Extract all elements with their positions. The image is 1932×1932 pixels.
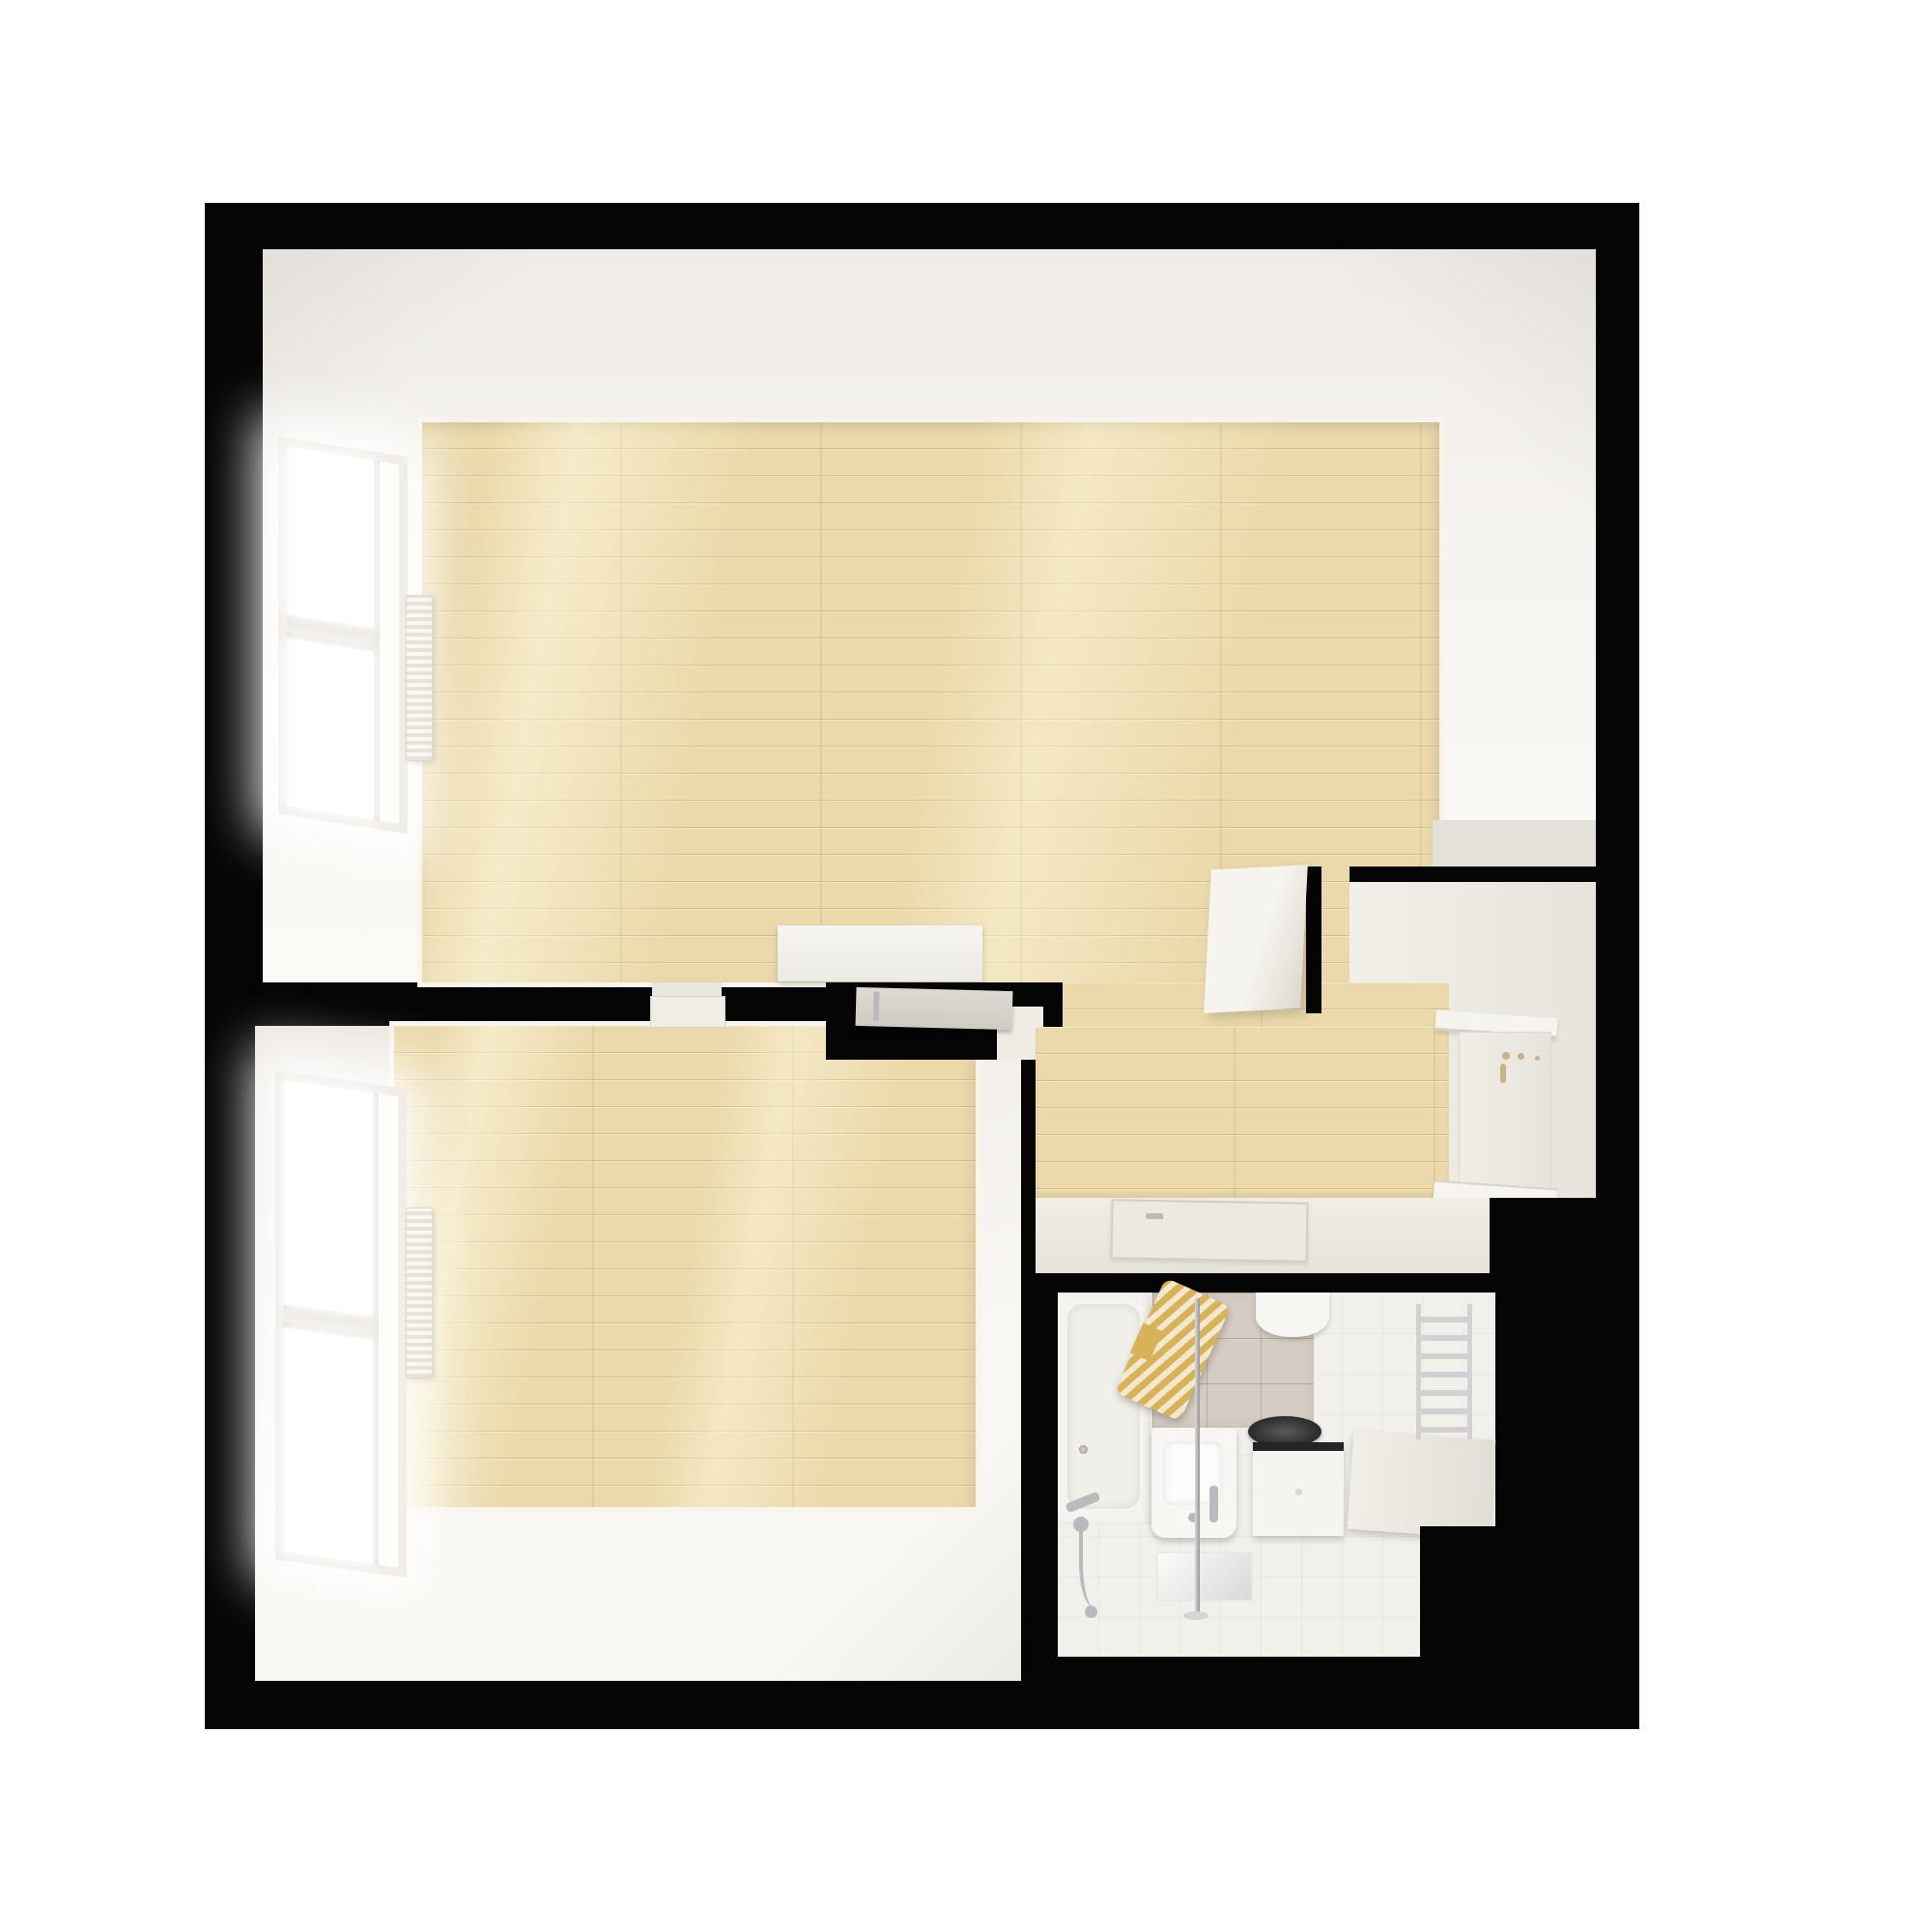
hallway-floor (1036, 1027, 1449, 1198)
bathtub-basin (1067, 1304, 1140, 1509)
counter-knob (1502, 1052, 1510, 1060)
window-pane-lower (287, 638, 374, 819)
window-pane-upper (287, 446, 374, 628)
kitchen-wall-top-face (1433, 820, 1596, 867)
counter-latch (1500, 1064, 1506, 1083)
door-hinge-wall-stub (1306, 867, 1321, 1013)
living-room-door-leaf-open (1204, 865, 1308, 1013)
kitchen-counter-panel (1459, 1032, 1551, 1206)
cabinet-dark-top (1253, 1442, 1344, 1451)
shower-column-pole (1195, 1298, 1200, 1619)
bedroom-window (275, 1070, 407, 1577)
bathroom-north-wall (1040, 1273, 1490, 1293)
tub-faucet-valve (1073, 1517, 1089, 1532)
toilet (1256, 1293, 1329, 1337)
window-sidelight (380, 462, 399, 824)
door-handle (1146, 1213, 1163, 1219)
window-pane-upper (284, 1080, 373, 1317)
bedroom-doorway-lintel (652, 982, 722, 997)
bedroom-floor (394, 1026, 976, 1507)
living-room-sideboard (778, 925, 982, 981)
bidet (1151, 1428, 1236, 1538)
bathtub (1058, 1293, 1151, 1524)
window-pane-lower (284, 1327, 373, 1564)
grey-door-leaf-open (856, 987, 1013, 1030)
bidet-handle-chrome (1209, 1486, 1218, 1522)
hand-shower-hose (1079, 1532, 1104, 1607)
bedroom-radiator (406, 1207, 433, 1378)
living-room-window (278, 437, 408, 834)
counter-knob (1535, 1056, 1540, 1061)
ladder-towel-radiator (1416, 1304, 1472, 1439)
bathtub-drain (1079, 1445, 1088, 1454)
bedroom-door-leaf-open (650, 996, 725, 1028)
floor-mirror-panel (1156, 1551, 1253, 1602)
window-sidelight (379, 1094, 398, 1568)
shower-pole-foot (1183, 1611, 1208, 1620)
wall-fill-right (1490, 1198, 1639, 1293)
wall-notch (1420, 1526, 1495, 1657)
bathroom-side-counter (1348, 1431, 1496, 1539)
floor-plan-scene (0, 0, 1932, 1932)
counter-knob (1518, 1053, 1524, 1060)
door-hinge-metal (873, 991, 880, 1020)
kitchen-niche-north-wall (1350, 867, 1597, 882)
cabinet-knob (1295, 1489, 1302, 1495)
living-room-radiator (406, 595, 433, 761)
bathroom-floor (1058, 1293, 1495, 1657)
sink-cabinet (1253, 1442, 1344, 1536)
hand-shower-head (1085, 1605, 1097, 1618)
bathroom-door-leaf-open (1110, 1199, 1308, 1263)
